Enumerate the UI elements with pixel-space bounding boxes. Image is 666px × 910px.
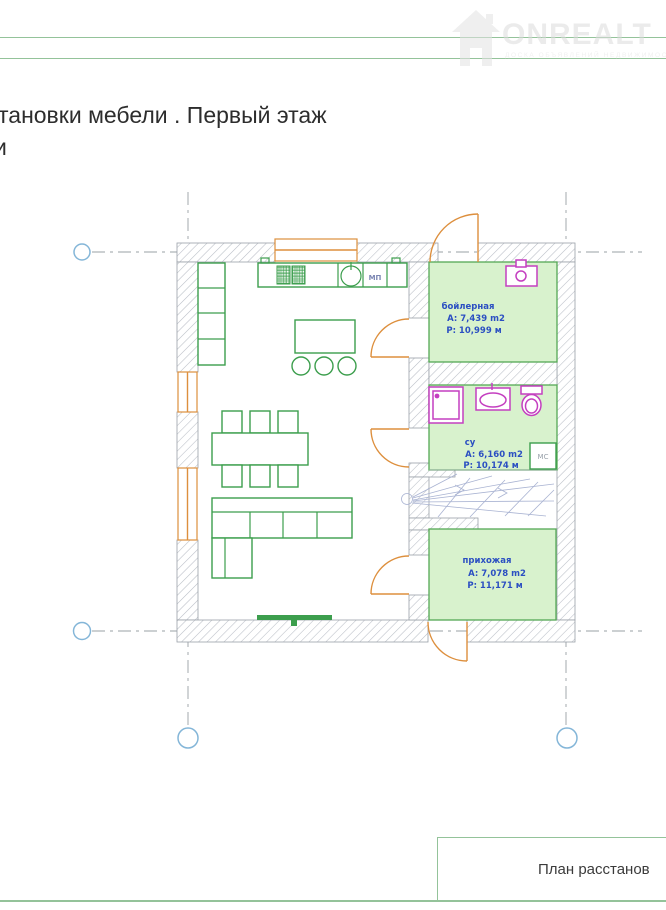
room-perimeter: P: 11,171 м (467, 581, 522, 591)
title-block-label: План расстанов (438, 861, 650, 878)
tall-cabinet (198, 263, 225, 365)
chair (250, 411, 270, 433)
axis-bubble (74, 244, 90, 260)
room-perimeter: P: 10,999 м (446, 326, 501, 336)
window-left-2 (178, 468, 197, 540)
axis-bubble (74, 623, 91, 640)
room-name: су (465, 438, 476, 448)
room-perimeter: P: 10,174 м (463, 461, 518, 471)
axis-bubble (557, 728, 577, 748)
window-top (275, 239, 357, 261)
door-bathroom (371, 429, 409, 467)
tv-mount (291, 620, 297, 626)
chair (222, 411, 242, 433)
living-area (212, 498, 352, 626)
sofa-corner (212, 538, 252, 578)
dining-set (212, 411, 308, 487)
title-block: План расстанов (437, 837, 666, 902)
frame-line-bottom (0, 900, 666, 902)
room-area: A: 7,439 m2 (447, 314, 505, 324)
stool (292, 357, 310, 375)
page: ONREALT ДОСКА ОБЪЯВЛЕНИЙ НЕДВИЖИМОСТИ та… (0, 0, 666, 910)
floor-plan: МП (0, 0, 666, 910)
axis-bubble (178, 728, 198, 748)
dining-table (212, 433, 308, 465)
door-entrance (428, 622, 467, 661)
room-area: A: 6,160 m2 (465, 450, 523, 460)
chair (278, 465, 298, 487)
window-left-1 (178, 372, 197, 412)
washing-machine-label: МП (369, 274, 382, 282)
stool (338, 357, 356, 375)
chair (222, 465, 242, 487)
toilet-icon (521, 386, 542, 394)
door-hallway (371, 556, 409, 594)
tv-icon (257, 615, 332, 620)
room-name: прихожая (463, 556, 512, 566)
chair (278, 411, 298, 433)
stool (315, 357, 333, 375)
stove-icon (277, 266, 290, 284)
room-area: A: 7,078 m2 (468, 569, 526, 579)
room-boiler (429, 262, 557, 362)
door-boiler-interior (371, 319, 409, 357)
kitchen-island (295, 320, 355, 353)
room-name: бойлерная (442, 301, 495, 312)
sofa (212, 498, 352, 538)
stove-icon (292, 266, 305, 284)
chair (250, 465, 270, 487)
ms-label: МС (538, 453, 549, 461)
